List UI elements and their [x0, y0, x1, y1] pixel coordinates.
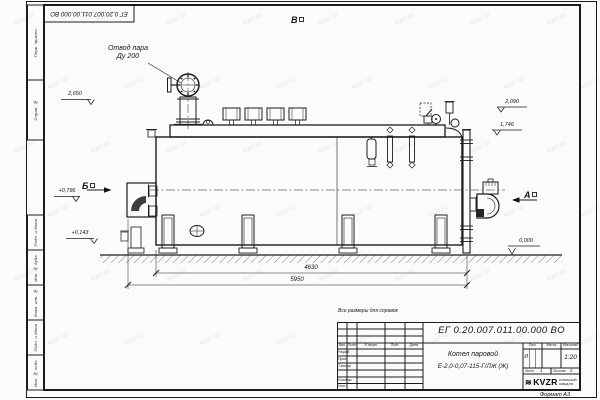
elevation-0143: +0,143: [64, 230, 96, 236]
top-stamp-text: ЕГ 0.20.007.011.00.000 ВО: [50, 10, 127, 17]
sheet-label: Лист: [525, 370, 534, 373]
row-razrab: Разраб.: [338, 351, 350, 354]
mass-header: Масса: [542, 344, 561, 347]
lit-value: И: [523, 355, 529, 360]
side-label-perv: Перв. примен.: [27, 5, 44, 80]
drawing-sheet: ЕГ 0.20.007.011.00.000 ВО Перв. примен. …: [0, 0, 600, 400]
water-level-gauges: [367, 127, 415, 168]
product-name-line1: Котел паровой: [423, 351, 523, 358]
sheets-label: Листов: [553, 370, 565, 373]
instrument-group-top: [420, 102, 463, 143]
leader-line: [148, 63, 181, 83]
reference-note: Все размеры для справок: [338, 309, 398, 315]
sheets-value: 2: [570, 369, 572, 373]
view-index-mark: [299, 17, 304, 22]
elevation-2090: 2,090: [496, 99, 528, 105]
sheet-value: 1: [540, 369, 542, 373]
format-note: Формат А3: [535, 392, 575, 398]
side-label-podp2: Подп. и дата: [27, 320, 44, 355]
elevation-2650: 2,650: [59, 91, 91, 97]
scale-header: Масштаб: [561, 344, 580, 347]
view-index-mark: [532, 192, 537, 197]
view-label-v: В: [291, 10, 304, 28]
top-fittings-row: [223, 108, 306, 125]
elevation-1746: 1,746: [491, 122, 523, 128]
col-izm: Изм.: [337, 344, 347, 347]
dimension-4630: 4630: [293, 265, 329, 272]
side-label-vzam: Взам. инв. №: [27, 285, 44, 320]
elevation-0796: +0,796: [51, 188, 83, 194]
col-ndok: N докум.: [357, 344, 385, 347]
col-podp: Подп.: [385, 344, 405, 347]
steam-outlet-label: Отвод пара Ду 200: [96, 45, 160, 60]
view-label-b: Б: [82, 176, 95, 194]
title-block: ЕГ 0.20.007.011.00.000 ВО Изм. Лист N до…: [337, 322, 580, 390]
row-utv: Утв.: [338, 385, 346, 388]
side-label-sprav: Справ. №: [27, 80, 44, 140]
doc-number: ЕГ 0.20.007.011.00.000 ВО: [423, 326, 580, 336]
elevation-0000: 0,000: [510, 238, 542, 244]
scale-value: 1:20: [561, 355, 580, 362]
dimension-5950: 5950: [279, 277, 315, 284]
logo-text: KVZR: [533, 378, 557, 387]
coil-logo-icon: ≋: [525, 379, 532, 387]
view-index-mark: [90, 183, 95, 188]
side-label-inv-dubl: Инв. № дубл.: [27, 250, 44, 285]
manufacturer-logo: ≋ KVZR КОТЕЛЬНЫЙ ЗАВОД РФ: [525, 376, 579, 389]
col-data: Дата: [405, 344, 423, 347]
burner-unit: [120, 183, 157, 253]
side-label-podp1: Подп. и дата: [27, 215, 44, 250]
lit-header: Лит.: [523, 344, 542, 347]
steam-outlet-label-line1: Отвод пара: [96, 45, 160, 53]
row-tkontr: Т.контр.: [338, 365, 352, 368]
steam-outlet-label-line2: Ду 200: [96, 53, 160, 61]
col-list: Лист: [347, 344, 357, 347]
steam-outlet-valve: [168, 74, 214, 125]
row-prov: Пров.: [338, 358, 347, 361]
product-name-line2: Е-2,0-0,07-115-Г/ЛЖ (Ж): [423, 364, 523, 370]
boiler-body: [146, 72, 505, 245]
fan-pump-unit: [470, 179, 499, 218]
view-label-a: А: [524, 185, 537, 203]
row-nkontr: Н.контр.: [338, 379, 352, 382]
top-corner-stamp: ЕГ 0.20.007.011.00.000 ВО: [44, 5, 134, 22]
ground-line: [100, 255, 562, 263]
side-label-inv-podl: Инв. № подл.: [27, 355, 44, 390]
logo-subtext-line2: ЗАВОД РФ: [559, 383, 577, 386]
